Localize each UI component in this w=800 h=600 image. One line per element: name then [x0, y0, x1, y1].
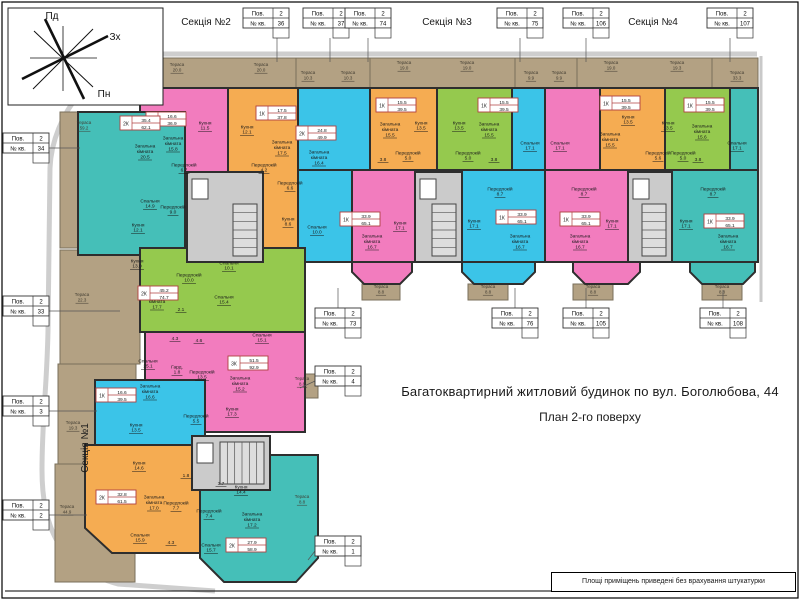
terrace-label: Тераса [170, 62, 185, 67]
room-label: кімната [232, 381, 249, 387]
floor-label: Пов. [572, 312, 585, 318]
elevator-icon [192, 179, 208, 199]
section-label: Секція №1 [80, 423, 91, 473]
apt-number: 73 [350, 322, 357, 328]
room-label: кімната [146, 500, 163, 506]
area-table-type: 1К [687, 104, 693, 110]
room-area: 17.3 [227, 412, 237, 418]
room-label: Кухня [606, 218, 619, 224]
room-label: Передпокій [251, 161, 277, 168]
room-area: 10.0 [312, 230, 322, 236]
area-table-type: 2К [229, 544, 235, 550]
area-table-living: 51.5 [249, 358, 259, 364]
room-label: Загальна [230, 376, 251, 382]
terrace-label: Тераса [552, 70, 567, 75]
room-area: 1.8 [174, 370, 181, 376]
room-label: Кухня [662, 120, 675, 126]
terrace [60, 250, 140, 364]
area-table-living: 32.8 [117, 492, 127, 498]
drawing-title: Багатоквартирний житловий будинок по вул… [390, 384, 790, 399]
apt-number: 37 [338, 22, 345, 28]
room-area: 59.2 [80, 126, 89, 131]
room-area: 5.6 [655, 156, 662, 162]
apartment-number-table [33, 153, 49, 163]
room-area: 4.6 [196, 338, 203, 344]
floor-plan-canvas: Кухня11.5Загальнакімната15.8Передпокій6.… [0, 0, 800, 600]
terrace-label: Тераса [66, 420, 81, 425]
room-label: кімната [720, 239, 737, 245]
room-label: Загальна [309, 150, 330, 156]
terrace-label: Тераса [586, 284, 601, 289]
room-label: Загальна [140, 384, 161, 390]
floor-label: Пов. [12, 137, 25, 143]
terrace-label: Тераса [670, 60, 685, 65]
room-area: 17.2 [247, 522, 257, 528]
room-area: 3.7 [218, 481, 225, 487]
elevator-icon [420, 179, 436, 199]
room-area: 9.0 [170, 210, 177, 216]
room-label: Спальня [252, 332, 272, 338]
room-area: 19.0 [463, 66, 472, 71]
apt-label: № кв. [499, 321, 515, 328]
area-table-type: 2К [99, 496, 105, 502]
room-label: Загальна [692, 124, 713, 130]
room-area: 15.7 [206, 548, 216, 554]
area-table-type: 1К [379, 104, 385, 110]
room-label: Кухня [199, 120, 212, 126]
room-label: Кухня [130, 422, 143, 428]
area-table-total: 39.5 [705, 107, 715, 113]
compass: Пд Зх Пн [8, 8, 163, 105]
room-area: 22.3 [78, 298, 87, 303]
terrace-label: Тераса [75, 292, 90, 297]
apartment-number-table [333, 28, 349, 38]
area-table-total: 65.1 [517, 219, 527, 225]
apt-number: 34 [38, 147, 45, 153]
apartment-number-table [522, 328, 538, 338]
room-label: Загальна [718, 234, 739, 240]
room-label: кімната [572, 239, 589, 245]
room-area: 13.5 [131, 428, 141, 434]
room-area: 25.1 [143, 364, 153, 370]
apartment-number-table [33, 416, 49, 426]
compass-label-south: Пд [45, 11, 58, 22]
room-area: 13.5 [454, 126, 464, 132]
room-area: 5.0 [465, 156, 472, 162]
area-table-total: 36.9 [167, 121, 177, 127]
drawing-title-block: Багатоквартирний житловий будинок по вул… [390, 384, 790, 424]
room-label: Загальна [144, 495, 165, 501]
room-label: Кухня [394, 220, 407, 226]
area-table-total: 92.9 [249, 365, 259, 371]
room-label: Спальня [140, 198, 160, 204]
floor-label: Пов. [354, 12, 367, 18]
area-table-total: 62.1 [141, 125, 151, 131]
room-area: 10.0 [184, 278, 194, 284]
room-area: 17.5 [277, 150, 287, 156]
area-table-type: 1К [343, 218, 349, 224]
floor-label: Пов. [252, 12, 265, 18]
room-area: 8.8 [378, 290, 385, 295]
area-table-total: 39.5 [499, 107, 509, 113]
room-label: Загальна [242, 512, 263, 518]
room-area: 15.1 [257, 338, 267, 344]
room-label: Передпокій [163, 499, 189, 506]
room-area: 14.9 [145, 204, 155, 210]
apt-label: № кв. [570, 21, 586, 28]
room-area: 14.4 [236, 490, 246, 496]
apt-label: № кв. [10, 409, 26, 416]
terrace-label: Тераса [524, 70, 539, 75]
room-area: 8.7 [497, 192, 504, 198]
apartment-number-table [593, 28, 609, 38]
apt-label: № кв. [10, 513, 26, 520]
room-label: Кухня [241, 124, 254, 130]
room-area: 15.4 [219, 300, 229, 306]
room-label: Передпокій [670, 149, 696, 156]
area-table-total: 49.9 [317, 135, 327, 141]
room-area: 17.1 [681, 224, 691, 230]
terrace-label: Тераса [397, 60, 412, 65]
bay-window [352, 262, 412, 284]
area-table-type: 1К [563, 218, 569, 224]
room-area: 14.6 [134, 466, 144, 472]
section-label: Секція №2 [181, 17, 231, 28]
floor-label: Пов. [501, 312, 514, 318]
area-table-type: 1К [707, 220, 713, 226]
apt-number: 36 [278, 22, 285, 28]
area-table-total: 74.7 [159, 295, 169, 301]
room-area: 15.8 [168, 146, 178, 152]
room-label: кімната [142, 389, 159, 395]
room-area: 8.7 [710, 192, 717, 198]
room-label: Передпокій [645, 149, 671, 156]
apt-label: № кв. [322, 321, 338, 328]
room-label: Спальня [307, 224, 327, 230]
terrace-label: Тераса [295, 376, 310, 381]
floor-label: Пов. [324, 540, 337, 546]
room-area: 16.7 [515, 244, 525, 250]
floor-label: Пов. [12, 300, 25, 306]
room-label: кімната [481, 127, 498, 133]
area-table-living: 15.5 [397, 100, 407, 106]
room-area: 13.5 [197, 375, 207, 381]
room-label: Кухня [622, 114, 635, 120]
area-table-living: 33.9 [517, 212, 527, 218]
room-area: 5.5 [193, 419, 200, 425]
area-table-total: 39.5 [117, 397, 127, 403]
room-label: Загальна [135, 144, 156, 150]
apartment-block [730, 88, 758, 170]
area-table-type: 1К [259, 112, 265, 118]
room-label: Загальна [380, 122, 401, 128]
room-area: 15.2 [235, 386, 245, 392]
room-area: 13.5 [663, 126, 673, 132]
room-label: Передпокій [455, 149, 481, 156]
room-area: 10.3 [304, 76, 313, 81]
area-table-total: 65.1 [581, 221, 591, 227]
apt-label: № кв. [10, 309, 26, 316]
room-area: 20.0 [257, 68, 266, 73]
room-area: 44.9 [63, 510, 72, 515]
room-label: кімната [602, 137, 619, 143]
apt-label: № кв. [707, 321, 723, 328]
apt-number: 76 [527, 322, 534, 328]
apt-label: № кв. [322, 379, 338, 386]
apartment-number-table [737, 28, 753, 38]
compass-label-north: Пн [98, 89, 111, 100]
apartment-number-table [345, 556, 361, 566]
room-area: 8.8 [719, 290, 726, 295]
terrace-label: Тераса [460, 60, 475, 65]
room-label: Кухня [235, 484, 248, 490]
area-table-living: 45.2 [159, 288, 169, 294]
room-area: 16.7 [367, 244, 377, 250]
room-label: Спальня [727, 140, 747, 146]
floor-label: Пов. [506, 12, 519, 18]
area-table-type: 1К [99, 394, 105, 400]
room-label: Передпокій [700, 185, 726, 192]
room-area: 9.9 [528, 76, 535, 81]
apt-number: 107 [740, 22, 751, 28]
floor-label: Пов. [12, 400, 25, 406]
area-table-living: 27.9 [247, 540, 257, 546]
room-area: 6.6 [287, 186, 294, 192]
area-table-type: 1К [603, 102, 609, 108]
area-table-living: 33.9 [361, 214, 371, 220]
area-table-living: 33.9 [725, 216, 735, 222]
terrace-label: Тераса [295, 494, 310, 499]
room-label: Загальна [272, 140, 293, 146]
terrace-label: Тераса [374, 284, 389, 289]
room-label: кімната [137, 149, 154, 155]
area-table-total: 65.1 [725, 223, 735, 229]
room-label: кімната [165, 141, 182, 147]
room-area: 16.4 [314, 160, 324, 166]
room-label: Загальна [600, 132, 621, 138]
room-label: кімната [694, 129, 711, 135]
compass-label-west: Зх [109, 32, 120, 43]
room-area: 4.3 [172, 336, 179, 342]
apartment-number-table [375, 28, 391, 38]
terrace-label: Тераса [301, 70, 316, 75]
room-label: Загальна [510, 234, 531, 240]
room-area: 19.3 [69, 426, 78, 431]
room-area: 8.8 [485, 290, 492, 295]
room-label: Кухня [453, 120, 466, 126]
room-area: 13.5 [416, 126, 426, 132]
apt-number: 108 [733, 322, 744, 328]
room-area: 16.6 [145, 394, 155, 400]
room-area: 17.1 [525, 146, 535, 152]
room-label: Спальня [550, 140, 570, 146]
room-area: 17.7 [152, 304, 162, 310]
apt-label: № кв. [714, 21, 730, 28]
room-area: 3.8 [491, 157, 498, 163]
room-label: Передпокій [189, 368, 215, 375]
room-area: 15.6 [697, 134, 707, 140]
room-label: кімната [274, 145, 291, 151]
room-area: 13.5 [623, 120, 633, 126]
room-area: 17.1 [607, 224, 617, 230]
room-area: 33.3 [733, 76, 742, 81]
drawing-subtitle: План 2-го поверху [390, 410, 790, 424]
room-label: Кухня [226, 406, 239, 412]
apt-number: 74 [380, 22, 387, 28]
terrace-label: Тераса [77, 120, 92, 125]
room-area: 4.3 [168, 540, 175, 546]
apartment-number-table [593, 328, 609, 338]
room-area: 9.9 [556, 76, 563, 81]
room-label: Передпокій [395, 149, 421, 156]
apt-label: № кв. [310, 21, 326, 28]
room-area: 19.0 [607, 66, 616, 71]
apartment-number-table [730, 328, 746, 338]
terrace-label: Тераса [481, 284, 496, 289]
room-label: Спальня [138, 358, 158, 364]
room-area: 11.5 [201, 126, 210, 132]
room-area: 5.0 [680, 156, 687, 162]
room-area: 12.1 [242, 130, 252, 136]
apt-number: 105 [596, 322, 607, 328]
room-area: 12.1 [133, 228, 143, 234]
room-label: Спальня [130, 532, 150, 538]
room-area: 10.3 [344, 76, 353, 81]
room-area: 1.8 [183, 473, 190, 479]
area-table-living: 16.6 [117, 390, 127, 396]
room-area: 16.7 [723, 244, 733, 250]
apartment-number-table [527, 28, 543, 38]
room-label: кімната [512, 239, 529, 245]
apt-label: № кв. [570, 321, 586, 328]
room-area: 20.0 [173, 68, 182, 73]
apartment-number-table [33, 316, 49, 326]
room-label: Загальна [362, 234, 383, 240]
room-label: Передпокій [160, 203, 186, 210]
terrace-label: Тераса [730, 70, 745, 75]
room-area: 8.8 [590, 290, 597, 295]
room-area: 8.6 [285, 222, 292, 228]
apt-number: 106 [596, 22, 607, 28]
floor-label: Пов. [709, 312, 722, 318]
apt-label: № кв. [504, 21, 520, 28]
room-area: 5.0 [405, 156, 412, 162]
room-label: Спальня [219, 260, 239, 266]
room-label: Передпокій [571, 185, 597, 192]
room-area: 15.5 [385, 132, 395, 138]
room-area: 15.5 [484, 132, 494, 138]
room-label: Кухня [680, 218, 693, 224]
apartment-number-table [273, 28, 289, 38]
area-table-total: 58.9 [247, 547, 257, 553]
terrace-label: Тераса [341, 70, 356, 75]
area-table-total: 61.5 [117, 499, 127, 505]
apt-label: № кв. [352, 21, 368, 28]
area-table-living: 15.5 [705, 100, 715, 106]
section-label: Секція №4 [628, 17, 678, 28]
area-table-type: 1К [499, 216, 505, 222]
apartment-number-table [33, 520, 49, 530]
section-label: Секція №3 [422, 17, 472, 28]
room-area: 20.5 [140, 154, 150, 160]
room-label: Кухня [415, 120, 428, 126]
room-area: 8.7 [581, 192, 588, 198]
room-area: 7.4 [206, 514, 213, 520]
apt-label: № кв. [250, 21, 266, 28]
apt-label: № кв. [322, 549, 338, 556]
room-area: 10.1 [224, 266, 234, 272]
floor-label: Пов. [12, 504, 25, 510]
terrace-label: Тераса [715, 284, 730, 289]
room-area: 15.9 [135, 538, 145, 544]
compass-box [8, 8, 163, 105]
area-table-living: 33.9 [581, 214, 591, 220]
area-table-type: 2К [299, 132, 305, 138]
terrace-label: Тераса [60, 504, 75, 509]
room-area: 3.8 [380, 157, 387, 163]
apt-number: 75 [532, 22, 539, 28]
room-area: 2.1 [178, 307, 185, 313]
room-area: 16.7 [575, 244, 585, 250]
area-table-living: 16.6 [167, 114, 177, 120]
terrace-label: Тераса [254, 62, 269, 67]
area-table-living: 17.5 [277, 108, 287, 114]
area-table-type: 1К [481, 104, 487, 110]
area-table-living: 35.4 [141, 118, 151, 124]
room-label: Передпокій [176, 271, 202, 278]
room-label: кімната [244, 517, 261, 523]
area-table-type: 3К [231, 362, 237, 368]
room-label: Спальня [214, 294, 234, 300]
room-label: Загальна [479, 122, 500, 128]
bay-window [462, 262, 535, 284]
elevator-icon [633, 179, 649, 199]
room-area: 17.1 [395, 226, 405, 232]
room-label: кімната [311, 155, 328, 161]
area-table-living: 15.5 [499, 100, 509, 106]
room-area: 17.0 [149, 505, 159, 511]
area-table-type: 2К [141, 292, 147, 298]
room-area: 3.8 [695, 157, 702, 163]
terrace-label: Тераса [604, 60, 619, 65]
room-label: Загальна [570, 234, 591, 240]
bay-window [573, 262, 640, 284]
area-table-living: 15.5 [621, 98, 631, 104]
apt-number: 33 [38, 310, 45, 316]
apartment-number-table [345, 386, 361, 396]
footnote: Площі приміщень приведені без врахування… [551, 572, 796, 592]
room-label: кімната [364, 239, 381, 245]
terrace [140, 58, 758, 88]
floor-label: Пов. [716, 12, 729, 18]
room-label: Загальна [163, 136, 184, 142]
room-area: 7.7 [173, 506, 180, 512]
room-area: 17.1 [555, 146, 565, 152]
room-label: кімната [382, 127, 399, 133]
room-label: Передпокій [487, 185, 513, 192]
room-label: Гард. [171, 364, 183, 370]
room-label: Кухня [132, 222, 145, 228]
room-area: 19.0 [400, 66, 409, 71]
bay-window [690, 262, 755, 284]
room-area: 8.8 [299, 500, 306, 505]
room-label: Кухня [282, 216, 295, 222]
apartment-block [545, 88, 600, 170]
area-table-living: 24.8 [317, 128, 327, 134]
area-table-total: 37.8 [277, 115, 287, 121]
area-table-total: 39.5 [621, 105, 631, 111]
room-area: 19.3 [673, 66, 682, 71]
